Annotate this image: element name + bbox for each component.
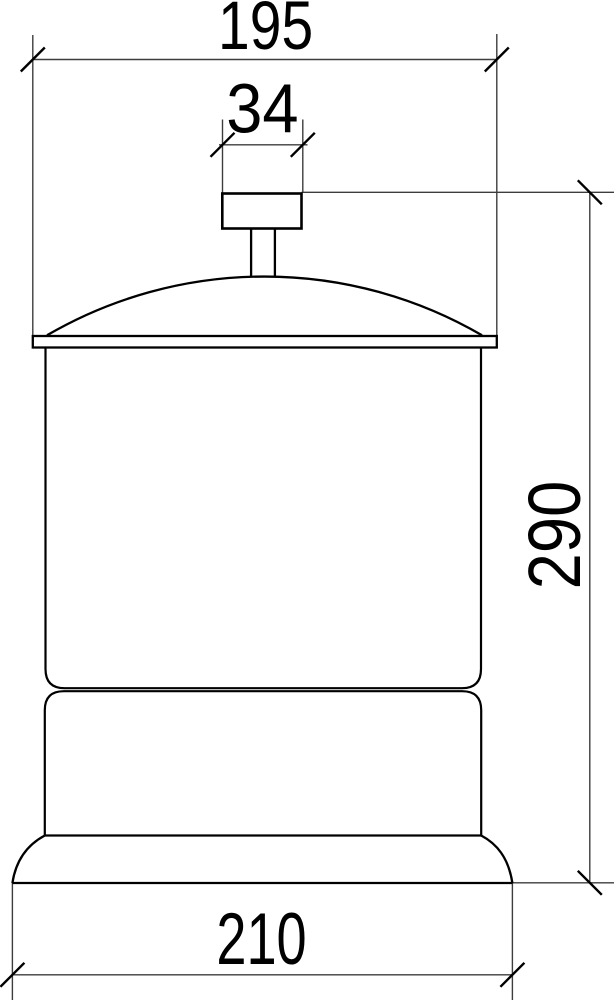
svg-text:195: 195 [218, 0, 313, 64]
svg-text:290: 290 [513, 481, 596, 590]
svg-text:34: 34 [226, 70, 298, 148]
svg-text:210: 210 [216, 898, 306, 980]
